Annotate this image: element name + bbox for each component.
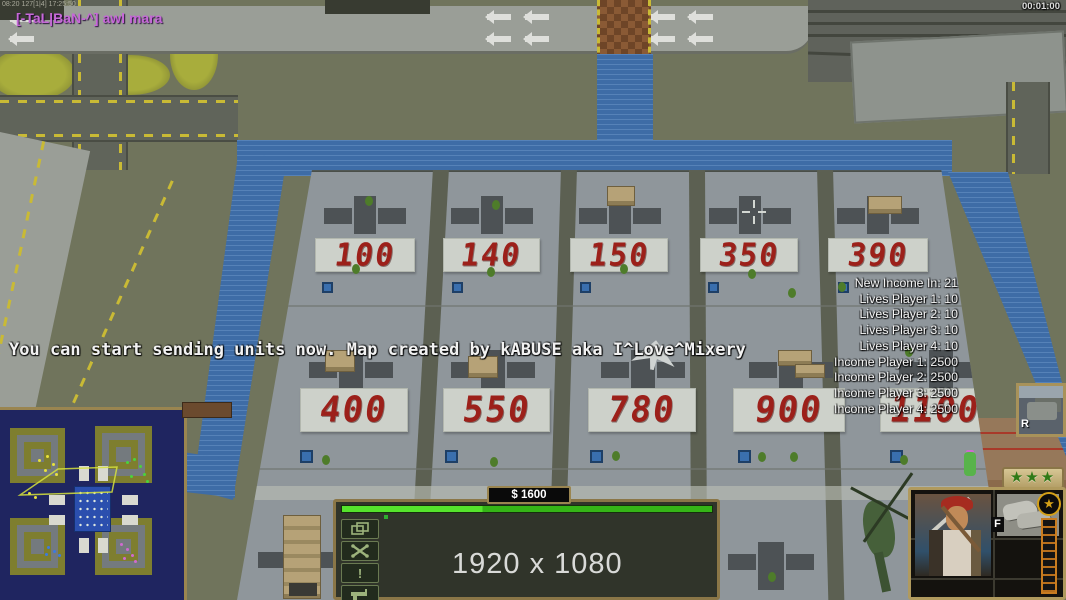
lane-price: 780 [605, 389, 678, 431]
system-message: You can start sending units now. Map cre… [9, 340, 746, 360]
lane-arrow-icon [487, 36, 511, 42]
lane-price-slab: 140 [443, 238, 540, 272]
lane-arrow-icon [689, 36, 713, 42]
mine-marker [300, 450, 313, 463]
rank-stars-badge: ★★★ [1002, 467, 1064, 489]
gun-icon [350, 588, 370, 600]
vehicle-unit[interactable] [607, 186, 635, 206]
game-timer: 00:01:00 [1022, 1, 1060, 12]
player-stats-block: New Income In: 21 Lives Player 1: 10 Liv… [834, 276, 958, 417]
mine-marker [322, 282, 333, 293]
wrench-icon [351, 544, 369, 558]
stat-line: New Income In: 21 [834, 276, 958, 292]
resolution-watermark: 1920 x 1080 [452, 548, 623, 581]
mine-marker [580, 282, 591, 293]
stat-line: Income Player 2: 2500 [834, 370, 958, 386]
unit-portrait [915, 494, 991, 576]
mine-marker [890, 450, 903, 463]
minimap-frame-tab [182, 402, 232, 418]
lane-price-slab: 150 [570, 238, 668, 272]
lane-price-slab: 550 [443, 388, 550, 432]
road [1006, 82, 1050, 174]
mine-marker [738, 450, 751, 463]
lane-arrow-icon [525, 36, 549, 42]
plaza-line [236, 468, 996, 470]
stat-line: Lives Player 1: 10 [834, 292, 958, 308]
infantry-unit[interactable] [964, 452, 976, 476]
vehicle-unit[interactable] [868, 196, 902, 214]
lane-price: 550 [460, 389, 533, 431]
thumbnail-sky [1019, 386, 1063, 398]
selected-unit-thumbnail[interactable]: R [1016, 383, 1066, 437]
portrait-body [929, 530, 981, 576]
lane-arrow-icon [689, 14, 713, 20]
unit-hotkey-label: M [387, 515, 388, 516]
inventory-label: F [991, 517, 1004, 532]
mine-marker [445, 450, 458, 463]
bunker-blocks [481, 196, 503, 234]
bunker-blocks [758, 542, 784, 590]
stat-line: Lives Player 2: 10 [834, 307, 958, 323]
unit-info-panel: F ★ [908, 487, 1066, 600]
stat-line: Lives Player 4: 10 [834, 339, 958, 355]
road-marking [69, 180, 173, 410]
road [0, 95, 238, 142]
bridge [325, 0, 430, 14]
game-screen: 100 140 150 350 390 400 550 780 900 1100 [0, 0, 1066, 600]
stat-line: Income Player 4: 2500 [834, 402, 958, 418]
lane-price-slab: 350 [700, 238, 798, 272]
lane-price-slab: 400 [300, 388, 408, 432]
thumbnail-label: R [1021, 418, 1029, 430]
lane-price: 140 [459, 237, 524, 274]
build-progress-bar [341, 505, 713, 513]
mine-marker [590, 450, 603, 463]
veterancy-star-icon: ★ [1037, 492, 1061, 516]
stack-button[interactable] [341, 519, 379, 539]
alert-icon: ! [358, 566, 362, 581]
alert-button[interactable]: ! [341, 563, 379, 583]
minimap-view-frustum [0, 410, 187, 600]
mine-marker [452, 282, 463, 293]
minimap[interactable] [0, 407, 187, 600]
money-display: $ 1600 [487, 486, 571, 504]
stat-line: Income Player 3: 2500 [834, 386, 958, 402]
stat-line: Income Player 1: 2500 [834, 355, 958, 371]
lane-arrow-icon [651, 36, 675, 42]
lane-price: 400 [317, 389, 390, 431]
lane-price: 350 [716, 237, 781, 274]
debug-stats-text: 08:20 127[1|4] 17:25:50 [2, 1, 76, 8]
thumbnail-vehicle [1027, 402, 1057, 420]
gun-button[interactable] [341, 585, 379, 600]
build-unit-button[interactable]: M [384, 515, 388, 519]
vehicle-unit[interactable] [795, 364, 825, 378]
lane-arrow-icon [651, 14, 675, 20]
supply-truck-unit[interactable] [283, 515, 321, 599]
bunker-blocks [354, 196, 376, 234]
experience-bar [1041, 518, 1057, 594]
mine-marker [708, 282, 719, 293]
lane-price: 900 [752, 389, 825, 431]
chat-message: [-TaL|BaN-^] awl mara [16, 10, 162, 26]
lane-price-slab: 390 [828, 238, 928, 272]
stack-icon [351, 522, 369, 536]
lane-price: 100 [332, 237, 397, 274]
lane-price: 390 [845, 237, 910, 274]
wrench-button[interactable] [341, 541, 379, 561]
mouse-crosshair-icon [742, 200, 766, 224]
lane-price-slab: 100 [315, 238, 415, 272]
lane-arrow-icon [10, 36, 34, 42]
grass-patch [0, 48, 75, 100]
lane-arrow-icon [487, 14, 511, 20]
lane-price-slab: 780 [588, 388, 696, 432]
lane-price: 150 [586, 237, 651, 274]
lane-price-slab: 900 [733, 388, 845, 432]
lane-arrow-icon [525, 14, 549, 20]
stat-line: Lives Player 3: 10 [834, 323, 958, 339]
checkpoint-strip [597, 0, 651, 62]
